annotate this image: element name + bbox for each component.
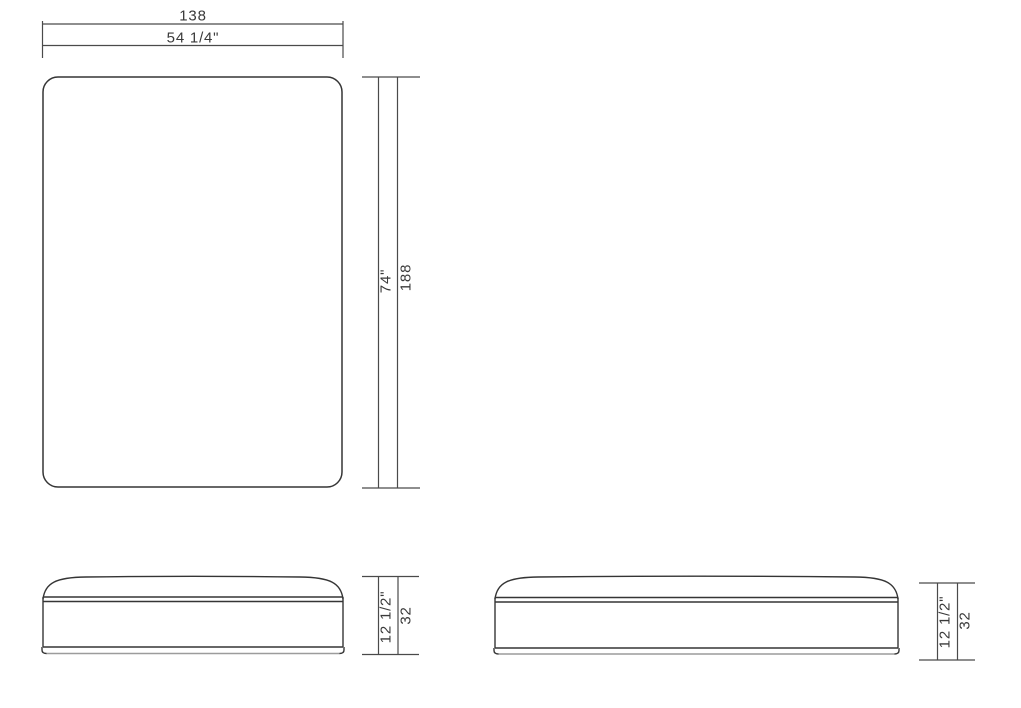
mattress-top-view-outline	[43, 77, 342, 487]
length-imperial-label: 74"	[378, 269, 395, 293]
width-imperial-label: 54 1/4"	[167, 30, 220, 47]
front-view	[42, 576, 344, 653]
front-height-imperial-label: 12 1/2"	[378, 591, 395, 644]
front-view-base-trim-left	[42, 647, 47, 654]
side-view-base-trim-left	[494, 648, 499, 654]
side-view-base-trim-right	[895, 648, 900, 654]
front-view-pillow-top	[43, 576, 343, 599]
front-view-base-trim-right	[340, 647, 345, 654]
technical-drawing-canvas: 138 54 1/4" 74" 188	[0, 0, 1021, 708]
drawing-page: 138 54 1/4" 74" 188	[0, 0, 1021, 708]
front-height-metric-label: 32	[398, 606, 415, 624]
side-view	[494, 576, 899, 654]
width-metric-label: 138	[179, 8, 206, 25]
side-height-metric-label: 32	[957, 611, 974, 629]
length-metric-label: 188	[398, 264, 415, 291]
side-view-pillow-top	[495, 576, 898, 599]
top-view	[43, 77, 342, 487]
side-height-imperial-label: 12 1/2"	[937, 596, 954, 649]
